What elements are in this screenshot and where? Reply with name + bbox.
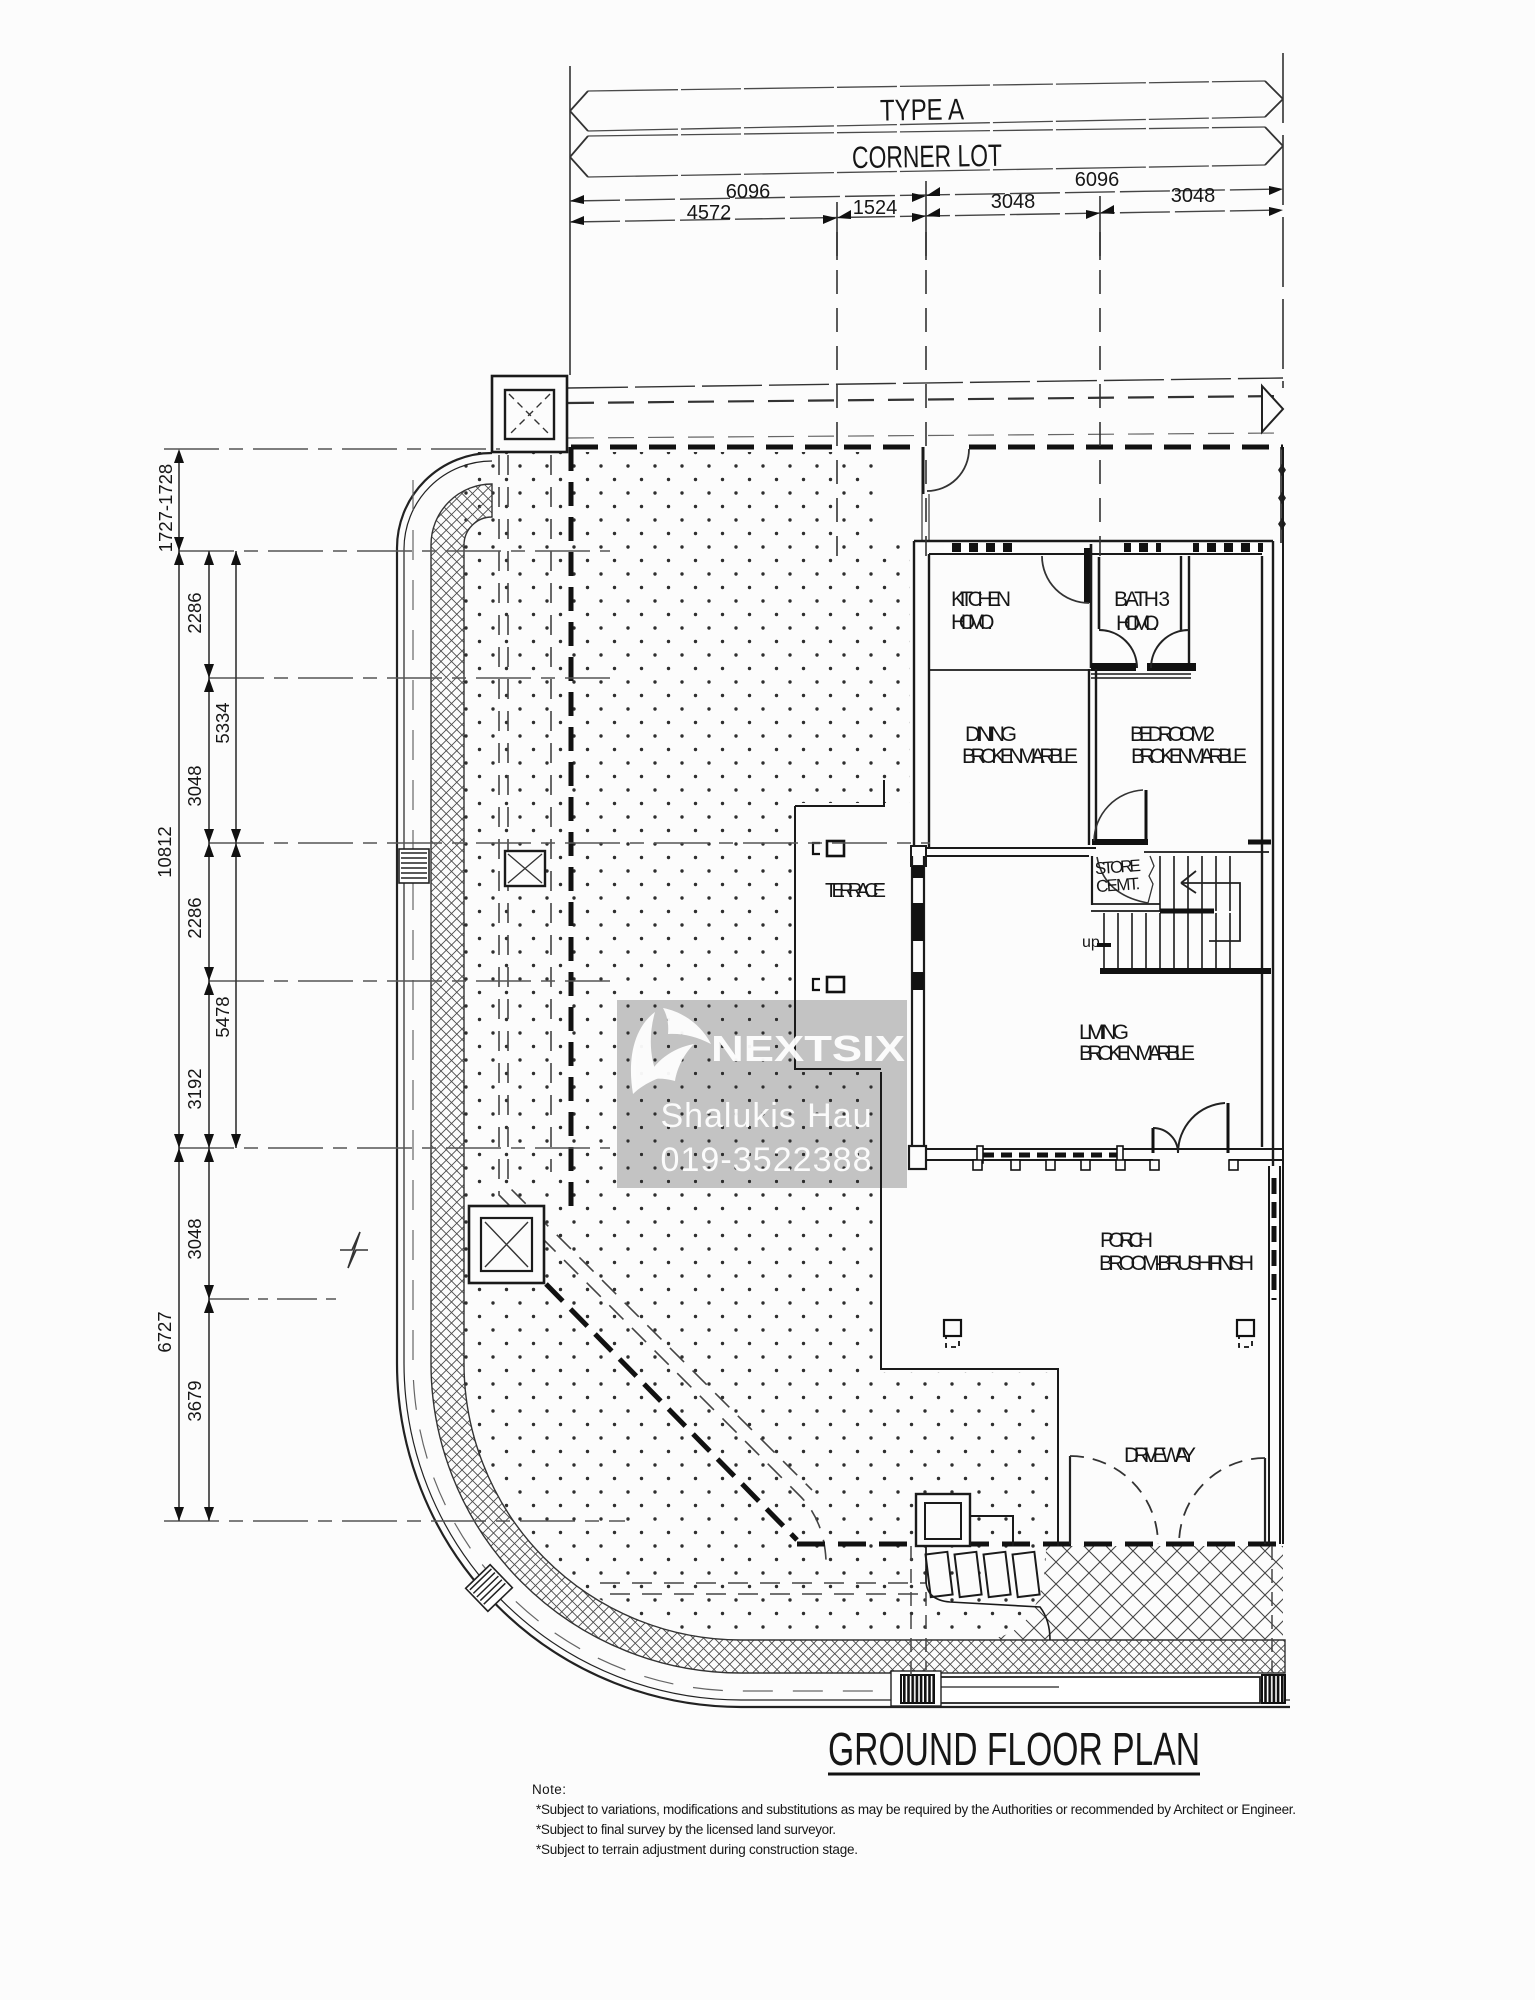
svg-text:BROOM-BRUSH FINISH: BROOM-BRUSH FINISH (1099, 1252, 1254, 1275)
svg-text:BROKEN MARBLE: BROKEN MARBLE (1079, 1042, 1195, 1065)
svg-text:*Subject to final survey by th: *Subject to final survey by the licensed… (536, 1822, 836, 1837)
svg-text:GROUND FLOOR PLAN: GROUND FLOOR PLAN (828, 1723, 1200, 1775)
svg-text:HOMO.: HOMO. (951, 611, 994, 634)
svg-text:CORNER LOT: CORNER LOT (852, 138, 1003, 175)
svg-text:5334: 5334 (212, 702, 233, 743)
svg-text:Note:: Note: (532, 1782, 566, 1797)
svg-text:5478: 5478 (212, 996, 233, 1037)
svg-text:TERRACE: TERRACE (825, 880, 886, 902)
svg-text:BEDROOM 2: BEDROOM 2 (1130, 723, 1215, 746)
svg-text:TYPE A: TYPE A (880, 93, 965, 127)
svg-text:PORCH: PORCH (1100, 1229, 1153, 1252)
svg-text:2286: 2286 (184, 592, 205, 633)
svg-text:BROKEN MARBLE: BROKEN MARBLE (1131, 745, 1247, 768)
svg-text:6727: 6727 (154, 1311, 175, 1352)
svg-text:BATH 3: BATH 3 (1114, 588, 1170, 611)
svg-text:HOMO.: HOMO. (1116, 612, 1159, 635)
svg-text:KITCHEN: KITCHEN (951, 588, 1011, 611)
svg-text:3048: 3048 (184, 765, 205, 806)
svg-text:10812: 10812 (154, 826, 175, 877)
svg-text:3679: 3679 (184, 1380, 205, 1421)
svg-text:LIVING: LIVING (1079, 1021, 1129, 1044)
svg-text:DRIVEWAY: DRIVEWAY (1124, 1444, 1196, 1467)
svg-text:NEXTSIX: NEXTSIX (711, 1028, 905, 1069)
svg-text:BROKEN MARBLE: BROKEN MARBLE (962, 745, 1078, 768)
svg-text:3192: 3192 (184, 1068, 205, 1109)
svg-text:1727-1728: 1727-1728 (155, 464, 176, 552)
svg-text:up: up (1082, 934, 1100, 951)
svg-text:3048: 3048 (184, 1218, 205, 1259)
svg-text:*Subject to terrain adjustment: *Subject to terrain adjustment during co… (536, 1842, 858, 1857)
svg-text:CEMT.: CEMT. (1095, 874, 1140, 896)
svg-text:3048: 3048 (1171, 185, 1216, 207)
svg-text:4572: 4572 (687, 202, 732, 224)
svg-text:*Subject to variations, modifi: *Subject to variations, modifications an… (536, 1802, 1296, 1817)
svg-text:6096: 6096 (726, 181, 771, 203)
svg-text:DINING: DINING (965, 723, 1017, 746)
svg-text:6096: 6096 (1075, 169, 1120, 191)
svg-text:3048: 3048 (991, 191, 1036, 213)
svg-text:019-3522388: 019-3522388 (661, 1141, 872, 1179)
svg-text:2286: 2286 (184, 897, 205, 938)
svg-text:1524: 1524 (853, 197, 898, 219)
svg-text:Shalukis Hau: Shalukis Hau (661, 1097, 872, 1135)
